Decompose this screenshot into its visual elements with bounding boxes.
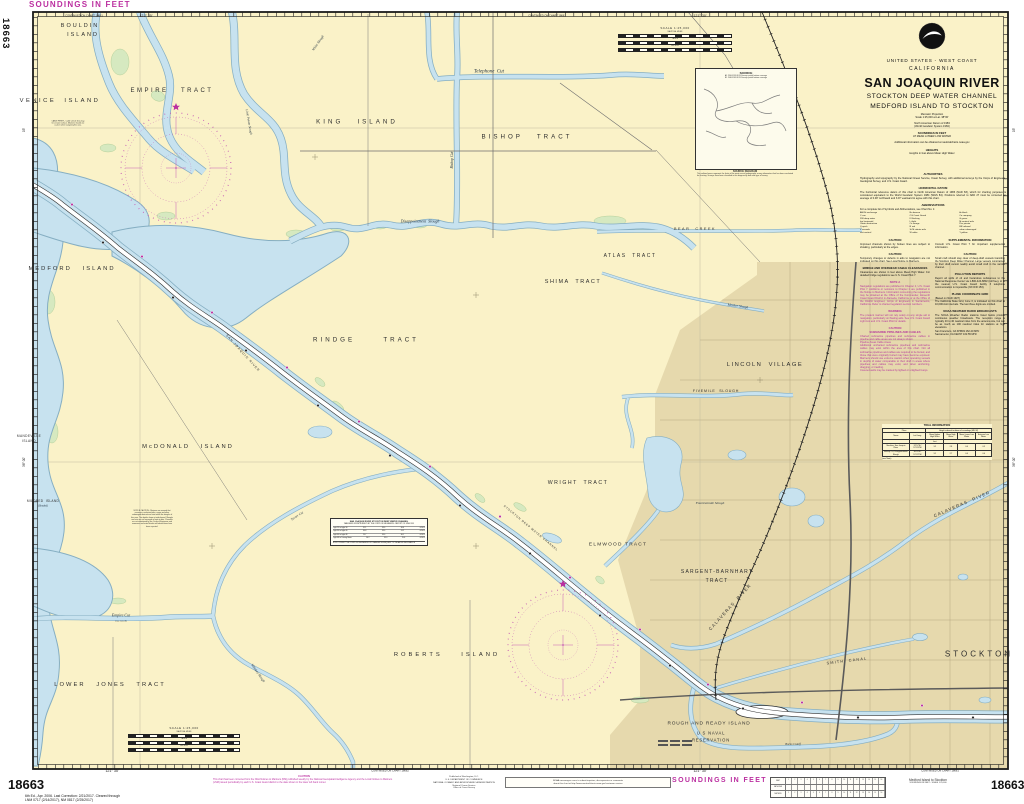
note-section: NOAA WEATHER RADIO BROADCASTSThe NOAA We… (935, 309, 1005, 335)
map-label: ELMWOOD TRACT (589, 543, 647, 548)
note-section: POLLUTION REPORTSReport all spills of oi… (935, 272, 1005, 289)
tidal-table-title: TIDAL INFORMATION (882, 424, 992, 427)
border-label: 121° 30' (693, 769, 706, 773)
additional-info: Additional information can be obtained a… (858, 141, 1006, 144)
soundings-sub: AT MEAN LOWER LOW WATER (858, 135, 1006, 138)
map-label: MILDRED ISLAND (27, 499, 59, 503)
note-section-body: Navigation regulations are published in … (860, 285, 930, 307)
border-label: CONTINUED ON CHART 18661 (65, 14, 103, 17)
abbreviation-item: vert vertical (860, 232, 907, 235)
projection-line2: Scale 1:25,000 at Lat. 38°00' (915, 116, 948, 119)
channel-table-row: Light 48 to Turning Basin30.235.029.86-2… (333, 536, 425, 540)
source-diagram-minimap (696, 79, 792, 151)
chart-number-left-edge: 18663 (0, 18, 11, 49)
channel-table-cell: 30.8 (363, 530, 366, 533)
note-section-heading: BRIDGE AND OVERHEAD CABLE CLEARANCES (860, 266, 930, 270)
title-country: UNITED STATES - WEST COAST (858, 58, 1006, 63)
note-section-heading: WARNING (860, 309, 930, 313)
map-label: KING ISLAND (316, 119, 398, 126)
map-label: McDONALD ISLAND (142, 444, 234, 450)
channel-table-cell: 29.8 (402, 537, 405, 540)
note-section: CAUTION SUBMARINE PIPELINES AND CABLESCh… (860, 326, 930, 372)
map-label: NOTE B CAUTION - Mariners are warned tha… (131, 510, 173, 528)
note-section-body: For a complete list of Symbols and Abbre… (860, 208, 1006, 211)
scale-label: SCALE 1:25,000 (122, 726, 246, 730)
map-label: CABLE FERRY - Cable vehicle ferry may be… (51, 121, 85, 128)
map-label: RESERVATION (692, 738, 730, 743)
tidal-cell: 0.0 (958, 450, 975, 457)
channel-table-cell: 35.0 (382, 530, 385, 533)
nautical-chart-sheet: { "hdr": { "soundings_top": "SOUNDINGS I… (0, 0, 1024, 804)
note-section: HORIZONTAL DATUMThe horizontal reference… (860, 186, 1006, 200)
map-label: TRACT (706, 578, 729, 584)
datum-line2: (World Geodetic System 1984) (914, 125, 949, 128)
note-section-body: Improved channels shown by broken lines … (860, 243, 930, 249)
note-section-body: The horizontal reference datum of this c… (860, 191, 1006, 200)
publisher-block: Published at Washington, D.C. U.S. DEPAR… (428, 776, 500, 790)
chart-title: SAN JOAQUIN RIVER (858, 76, 1006, 90)
map-label: LOWER JONES TRACT (54, 682, 165, 688)
note-section-body: The prudent mariner will not rely solely… (860, 314, 930, 323)
channel-table-cell: 30.6 (401, 527, 404, 530)
source-diagram-caption: SOURCE DIAGRAM The outlined areas repres… (697, 170, 793, 178)
map-label: SARGENT-BARNHART (681, 569, 753, 575)
map-label: Burns Cutoff (785, 742, 800, 746)
edition-note: 6th Ed., Apr. 2006. Last Correction: 2/2… (25, 794, 120, 803)
abbreviation-item: Y yellow (959, 232, 1006, 235)
conversion-row-label: FATHOMS (771, 785, 786, 791)
tidal-cell: 3.1 (926, 450, 944, 457)
channel-table-cell: 31.2 (401, 530, 404, 533)
map-label: RINDGE TRACT (313, 337, 419, 344)
tidal-cell: 2.7 (944, 450, 958, 457)
note-section: CAUTIONSmall craft should stay clear of … (935, 252, 1005, 269)
source-caption-note: The outlined areas represent the limits … (697, 173, 793, 178)
note-section-heading: NOAA WEATHER RADIO BROADCASTS (935, 309, 1005, 313)
note-section-heading: NOTE A (860, 280, 930, 284)
noaa-logo (918, 22, 946, 50)
map-label: (see note B) (115, 620, 126, 623)
channel-table-cell: Light 30 to Light 40 (333, 530, 347, 533)
notes-left-column: CAUTIONImproved channels shown by broken… (860, 238, 930, 375)
map-label: FIVEMILE SLOUGH (693, 389, 739, 393)
channel-table-cell: 30.1 (401, 534, 404, 537)
scale-bar-bottom: SCALE 1:25,000 NAUTICAL MILES YARDS METE… (122, 726, 246, 753)
map-label: Turner Cut (290, 510, 304, 521)
border-label: CONTINUED ON CHART 18661 (528, 14, 566, 17)
map-label: Mosher Slough (728, 303, 749, 310)
note-section-heading: HORIZONTAL DATUM (860, 186, 1006, 190)
inquiry-note-box: NOAA encourages users to submit inquirie… (505, 777, 671, 788)
border-label: 121° 35' (139, 14, 152, 18)
conversion-cell: 16 (879, 778, 885, 784)
channel-table-cell: 35.0 (382, 527, 385, 530)
tidal-cell: Mean Lower Low Water (958, 433, 975, 440)
note-section-heading: CAUTION (860, 252, 930, 256)
chart-subtitle-2: MEDFORD ISLAND TO STOCKTON (858, 103, 1006, 110)
channel-table-cell: 6-2015 (420, 534, 425, 537)
border-label: CONTINUED ON CHART 18662 (371, 769, 409, 772)
scale-bar-top: SCALE 1:25,000 NAUTICAL MILES YARDS METE… (612, 26, 738, 53)
title-block: UNITED STATES - WEST COAST CALIFORNIA SA… (858, 22, 1006, 155)
channel-table-cell: Light 40 to Light 48 (333, 534, 347, 537)
map-label: MANDEVILLE (17, 434, 41, 438)
soundings-in-feet-top: SOUNDINGS IN FEET (29, 0, 131, 9)
note-section-heading: CAUTION (860, 238, 930, 242)
map-label: ISLAND (22, 439, 36, 443)
map-label: SHIMA TRACT (545, 279, 601, 285)
map-label: SMITH CANAL (826, 657, 867, 666)
channel-table-cell: 31.1 (363, 527, 366, 530)
channel-table-cell: 30.2 (366, 537, 369, 540)
map-label: Empire Cut (112, 613, 130, 618)
map-label: BOULDIN (61, 23, 99, 29)
channel-table-note: NOTE: CONSULT THE CORPS OF ENGINEERS FOR… (333, 541, 425, 544)
conversion-cell: 16 (879, 791, 885, 797)
note-section: CAUTIONImproved channels shown by broken… (860, 238, 930, 249)
note-section-body: The NOAA Weather Radio stations listed b… (935, 314, 1005, 336)
note-section-heading: CAUTION (935, 252, 1005, 256)
tidal-cell: Bishop Cut, Disappointment Slough (883, 450, 910, 457)
note-section-body: Temporary changes or defects in aids to … (860, 257, 930, 263)
note-section: ABBREVIATIONSFor a complete list of Symb… (860, 203, 1006, 235)
tidal-table: PlaceHeight referred to datum of soundin… (882, 428, 992, 457)
border-label: 121° 35' (105, 769, 118, 773)
channel-table-cell: 29.7 (363, 534, 366, 537)
note-section-heading: CAUTION SUBMARINE PIPELINES AND CABLES (860, 326, 930, 334)
map-label: STOCKTON (945, 650, 1013, 659)
map-label: CALAVERAS RIVER (708, 583, 753, 632)
note-section-body: Charted submarine pipelines and submarin… (860, 335, 930, 372)
notes-full-column: AUTHORITIESHydrography and topography by… (860, 172, 1006, 235)
map-label: Bishop Cut (450, 152, 454, 169)
map-label: U S NAVAL (697, 731, 725, 736)
channel-table-cell: 35.0 (384, 537, 387, 540)
abbreviations-grid: ANCH anchorageBn beaconbk blackC canCG C… (860, 212, 1006, 235)
note-section: NOTE ANavigation regulations are publish… (860, 280, 930, 306)
map-label: White Slough (311, 34, 325, 51)
conversion-cell (879, 785, 885, 791)
map-label: Whiskey Slough (250, 663, 266, 683)
map-label: (flooded) (38, 505, 48, 508)
note-section-body: Report all spills of oil and hazardous s… (935, 277, 1005, 289)
channel-table-cell: 35.0 (382, 534, 385, 537)
heights-sub: Heights in feet above Mean High Water (858, 152, 1006, 155)
scale-label: SCALE 1:25,000 (612, 26, 738, 30)
note-section-heading: POLLUTION REPORTS (935, 272, 1005, 276)
border-label: 05' (1012, 128, 1016, 132)
map-label: BEAR CREEK (674, 227, 716, 231)
tidal-cell: -1.4 (975, 450, 991, 457)
note-section: AUTHORITIESHydrography and topography by… (860, 172, 1006, 183)
map-label: VENICE ISLAND (20, 98, 101, 104)
inquiry-line2: about this chart at http://www.nauticalc… (508, 783, 668, 786)
note-section: BRIDGE AND OVERHEAD CABLE CLEARANCESClea… (860, 266, 930, 277)
map-label: ROUGH AND READY ISLAND (667, 722, 750, 727)
note-section-body: Clearances are shown in feet above Mean … (860, 271, 930, 277)
map-label: WRIGHT TRACT (548, 480, 609, 486)
source-diagram-box: SOURCE A1 1990-1999 NOS Surveys partial … (695, 68, 797, 170)
channel-table-cell: Light 48 to Turning Basin (333, 537, 352, 540)
conversion-row: METERS12345678910111213141516 (771, 791, 885, 797)
channel-tabulation-box: SAN JOAQUIN RIVER STOCKTON DEEP WATER CH… (330, 518, 428, 546)
conversion-row-label: METERS (771, 791, 786, 797)
map-label: Fourteenmile Slough (696, 501, 725, 505)
notes-panel: AUTHORITIESHydrography and topography by… (860, 172, 1006, 375)
note-section-heading: SUPPLEMENTAL INFORMATION (935, 238, 1005, 242)
tidal-cell: Mean High Water (944, 433, 958, 440)
border-label: CONTINUED ON CHART 18661 (921, 769, 959, 772)
channel-table-cell: Light 23 to Light 30 (333, 527, 347, 530)
map-label: ATLAS TRACT (604, 253, 657, 259)
note-section-body: Small craft should stay clear of deep-dr… (935, 257, 1005, 269)
tidal-table-note: (see Note) (882, 458, 992, 460)
map-label: ISLAND (67, 32, 99, 38)
channel-table-subtitle: TABULATED FROM SURVEYS BY THE CORPS OF E… (333, 523, 425, 525)
bottom-caution: CAUTION This chart has been corrected fr… (213, 775, 395, 784)
note-section-body: Consult U.S. Coast Pilot 7 for important… (935, 243, 1005, 249)
note-section-body: Hydrography and topography by the Nation… (860, 177, 1006, 183)
channel-table-cell: 6-2015 (420, 537, 425, 540)
title-state: CALIFORNIA (858, 66, 1006, 72)
note-section: PLANE COORDINATE GRID(Based on NAD 1927)… (935, 292, 1005, 306)
tidal-cell: 38°03'N / 121°25'W (909, 450, 925, 457)
map-label: Disappointment Slough (401, 219, 440, 224)
chart-number-bottom-left: 18663 (8, 777, 44, 792)
channel-table-rows: Light 23 to Light 3031.135.030.66-2015Li… (333, 526, 425, 540)
border-label: 38° 00' (22, 457, 26, 467)
bottom-caution-body: This chart has been corrected from the N… (213, 778, 395, 784)
note-section-heading: ABBREVIATIONS (860, 203, 1006, 207)
publisher-line5: Office of Coast Survey (428, 787, 500, 790)
conversion-row: FEET12345678910111213141516 (771, 778, 885, 785)
note-section: CAUTIONTemporary changes or defects in a… (860, 252, 930, 263)
note-section-heading: PLANE COORDINATE GRID (935, 292, 1005, 296)
abbreviation-item: W white (910, 232, 957, 235)
map-label: CALAVERAS RIVER (933, 490, 991, 518)
notes-right-column: SUPPLEMENTAL INFORMATIONConsult U.S. Coa… (935, 238, 1005, 375)
conversion-row-label: FEET (771, 778, 786, 784)
edition-line2: LNM 0717 (2/14/2017), NM 0817 (2/25/2017… (25, 798, 120, 802)
chart-extent-note: Medford Island to Stockton SOUNDINGS IN … (893, 778, 963, 784)
map-label: Telephone Cut (474, 70, 504, 75)
map-label: STOCKTON DEEP WATER CHANNEL (503, 504, 559, 552)
map-label: SAN JOAQUIN RIVER (225, 333, 261, 372)
note-section-body: (Based on NAD 1927) The California State… (935, 297, 1005, 306)
chart-number-bottom-right: 18663 (991, 778, 1024, 792)
channel-table-cell: 6-2015 (420, 530, 425, 533)
note-section: WARNINGThe prudent mariner will not rely… (860, 309, 930, 323)
conversion-table: FEET12345678910111213141516FATHOMSMETERS… (770, 777, 886, 798)
map-label: LINCOLN VILLAGE (727, 362, 804, 368)
map-label: BISHOP TRACT (482, 134, 573, 141)
tidal-information-table: TIDAL INFORMATIONPlaceHeight referred to… (882, 424, 992, 460)
extent-subtitle: SOUNDINGS IN FEET - SCALE 1:25,000 (893, 782, 963, 784)
note-section-heading: AUTHORITIES (860, 172, 1006, 176)
map-label: Little Potato Slough (245, 109, 253, 135)
conversion-row: FATHOMS (771, 785, 885, 792)
map-label: EMPIRE TRACT (131, 88, 214, 94)
note-section: SUPPLEMENTAL INFORMATIONConsult U.S. Coa… (935, 238, 1005, 249)
border-label: 38° 00' (1012, 457, 1016, 467)
border-label: 05' (22, 128, 26, 132)
map-label: MEDFORD ISLAND (28, 266, 115, 272)
soundings-in-feet-bottom: SOUNDINGS IN FEET (672, 777, 767, 784)
border-label: 121° 30' (693, 14, 706, 18)
channel-table-cell: 6-2015 (420, 527, 425, 530)
chart-subtitle-1: STOCKTON DEEP WATER CHANNEL (858, 93, 1006, 100)
map-label: ROBERTS ISLAND (394, 652, 500, 658)
tidal-cell: Extreme Low Water (975, 433, 991, 440)
